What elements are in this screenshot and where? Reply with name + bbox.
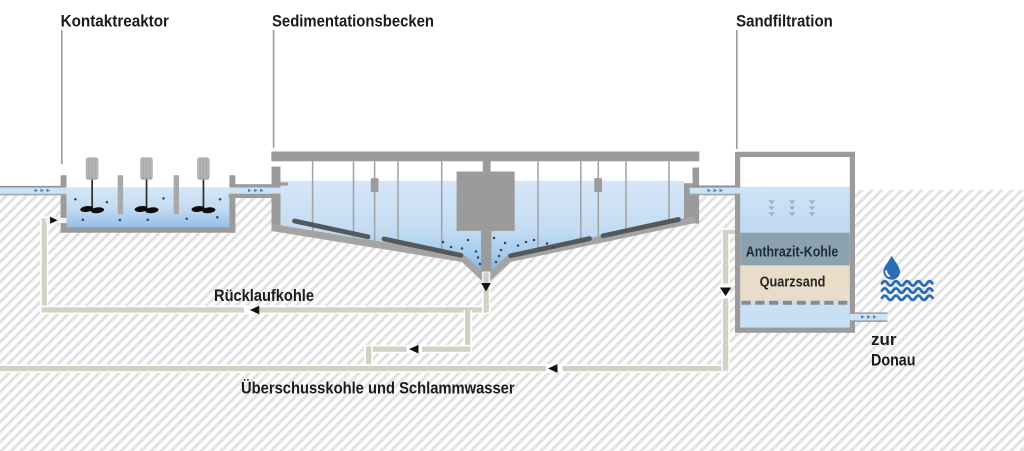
svg-text:Überschusskohle und Schlammwas: Überschusskohle und Schlammwasser (241, 379, 515, 398)
svg-text:Kontaktreaktor: Kontaktreaktor (61, 11, 170, 30)
svg-text:Anthrazit-Kohle: Anthrazit-Kohle (746, 245, 839, 261)
svg-text:Donau: Donau (871, 351, 916, 370)
svg-text:zur: zur (871, 330, 897, 349)
svg-text:Quarzsand: Quarzsand (760, 275, 826, 291)
svg-text:Rücklaufkohle: Rücklaufkohle (214, 286, 314, 305)
svg-text:Sandfiltration: Sandfiltration (736, 11, 833, 30)
svg-text:Sedimentationsbecken: Sedimentationsbecken (272, 11, 434, 30)
